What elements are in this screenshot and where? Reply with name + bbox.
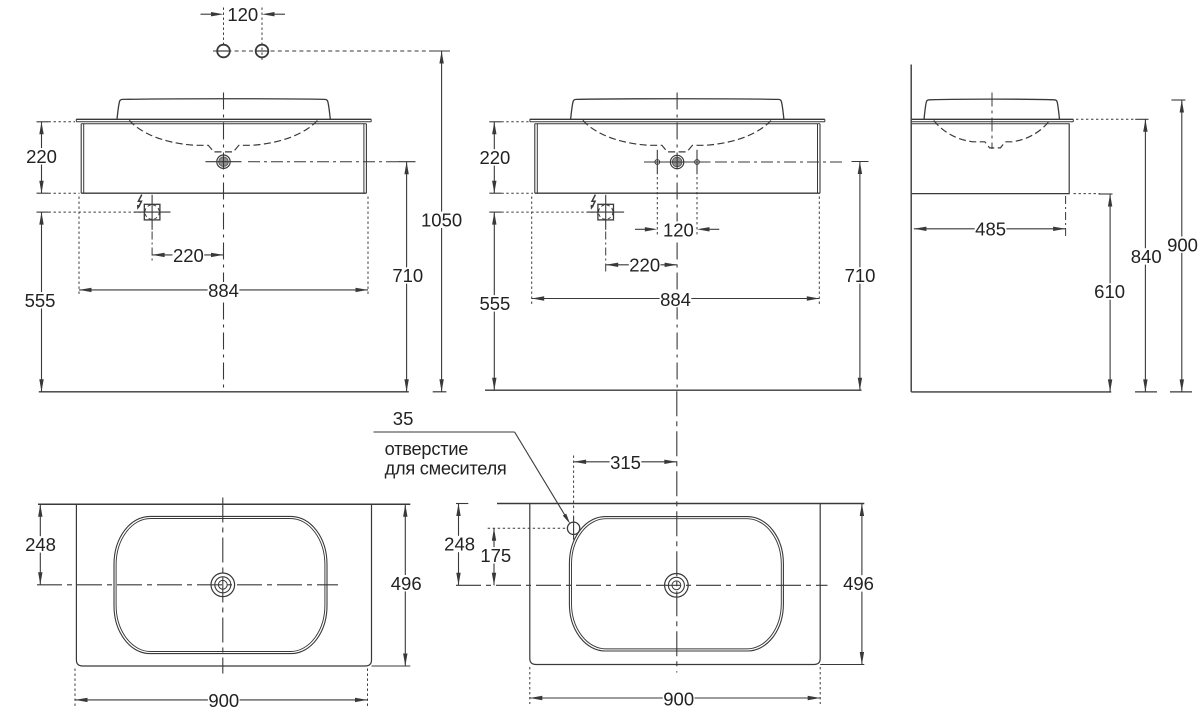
- svg-text:175: 175: [480, 545, 511, 566]
- svg-text:248: 248: [25, 534, 56, 555]
- svg-text:710: 710: [392, 265, 423, 286]
- svg-text:900: 900: [1167, 234, 1198, 255]
- svg-text:496: 496: [843, 573, 874, 594]
- svg-text:35: 35: [393, 408, 414, 429]
- svg-text:120: 120: [227, 4, 258, 25]
- svg-text:220: 220: [629, 255, 660, 276]
- svg-text:220: 220: [479, 147, 510, 168]
- svg-text:485: 485: [975, 219, 1006, 240]
- svg-text:900: 900: [208, 690, 239, 711]
- svg-text:884: 884: [208, 280, 239, 301]
- svg-text:555: 555: [25, 290, 56, 311]
- svg-text:120: 120: [663, 219, 694, 240]
- svg-text:220: 220: [173, 245, 204, 266]
- svg-text:610: 610: [1094, 281, 1125, 302]
- svg-text:496: 496: [391, 573, 422, 594]
- svg-text:248: 248: [444, 534, 475, 555]
- svg-text:1050: 1050: [421, 210, 462, 231]
- svg-text:884: 884: [660, 289, 691, 310]
- svg-text:840: 840: [1131, 246, 1162, 267]
- svg-text:315: 315: [610, 452, 641, 473]
- svg-text:555: 555: [479, 293, 510, 314]
- svg-text:220: 220: [26, 146, 57, 167]
- svg-text:для смесителя: для смесителя: [385, 459, 507, 479]
- svg-text:710: 710: [845, 265, 876, 286]
- svg-text:отверстие: отверстие: [385, 439, 469, 459]
- svg-text:900: 900: [663, 689, 694, 710]
